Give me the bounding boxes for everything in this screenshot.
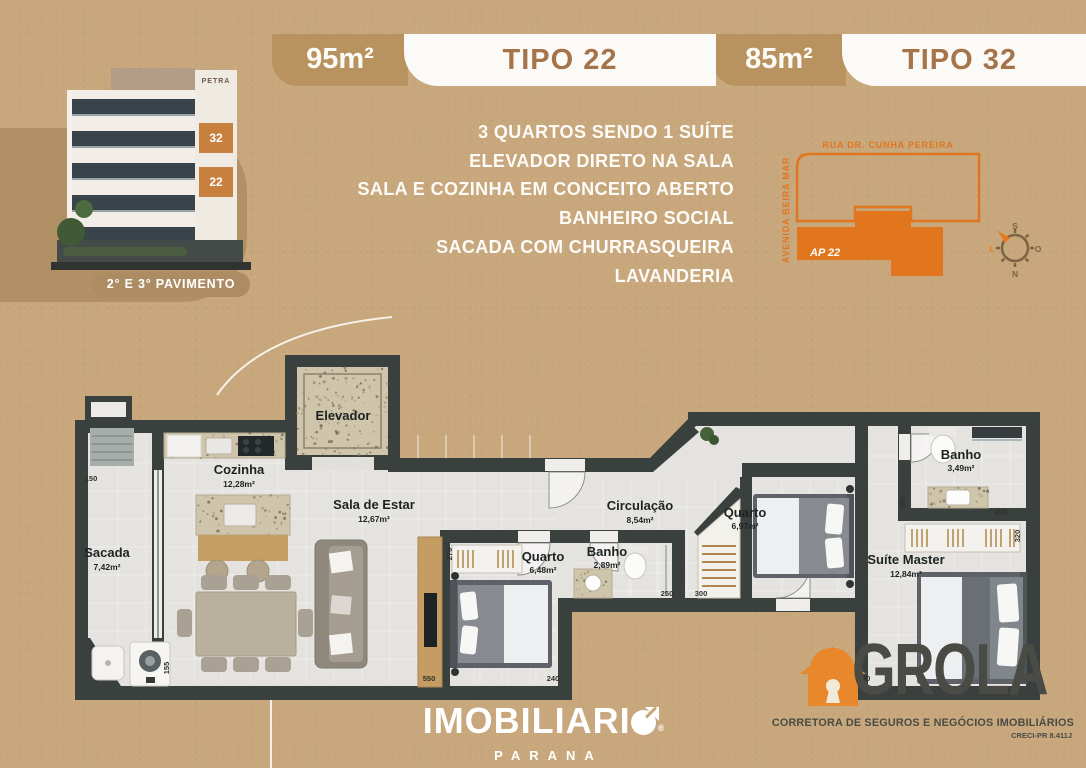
kitchen-sink	[206, 438, 232, 454]
building-hedge	[63, 247, 187, 256]
service-box-inner	[91, 402, 126, 417]
brand-region: PARANA	[383, 748, 705, 763]
compass-l: L	[989, 244, 994, 254]
cooktop	[238, 436, 274, 456]
lot-outline	[797, 154, 979, 221]
compass-s: S	[1012, 221, 1018, 231]
label-cozinha: Cozinha	[214, 462, 265, 477]
feature-list: 3 QUARTOS SENDO 1 SUÍTE ELEVADOR DIRETO …	[314, 118, 734, 290]
sink	[585, 575, 601, 591]
label-quarto2: Quarto	[724, 505, 767, 520]
dim-250: 250	[661, 589, 674, 598]
palm-tree-icon	[75, 200, 93, 218]
bedroom2-items	[753, 485, 854, 588]
compass-o: O	[1035, 244, 1042, 254]
registered-mark: ®	[658, 723, 666, 733]
dim-270: 270	[445, 548, 454, 561]
grola-subtitle: CORRETORA DE SEGUROS E NEGÓCIOS IMOBILIÁ…	[772, 717, 1074, 729]
dim-550: 550	[423, 674, 436, 683]
area-quarto1: 6,48m²	[530, 565, 557, 575]
fridge	[167, 435, 201, 457]
label-banho1: Banho	[587, 544, 628, 559]
label-elevador: Elevador	[316, 408, 371, 423]
flyer-page: 95m² TIPO 22 85m² TIPO 32 PETRA 32 22 2°…	[0, 0, 1086, 768]
area-banho2: 3,49m²	[948, 463, 975, 473]
dining-table	[196, 592, 296, 656]
feature-line: LAVANDERIA	[314, 262, 734, 291]
label-sala: Sala de Estar	[333, 497, 415, 512]
feature-line: SACADA COM CHURRASQUEIRA	[314, 233, 734, 262]
label-suite: Suíte Master	[867, 552, 944, 567]
area-badge-95: 95m²	[272, 34, 408, 86]
dim-150: 150	[85, 474, 98, 483]
unit-footprint-label: AP 22	[809, 247, 840, 259]
feature-line: ELEVADOR DIRETO NA SALA	[314, 147, 734, 176]
label-quarto1: Quarto	[522, 549, 565, 564]
imobiliario-logo: IMOBILIARI® PARANA	[383, 702, 705, 763]
street-name-left: AVENIDA BEIRA MAR	[781, 157, 791, 263]
dim-205: 205	[995, 507, 1008, 516]
dim-240: 240	[547, 674, 560, 683]
building-tower: PETRA 32 22	[195, 70, 237, 252]
label-circulacao: Circulação	[607, 498, 674, 513]
label-banho2: Banho	[941, 447, 982, 462]
sink	[946, 490, 970, 505]
shower	[972, 427, 1022, 438]
dim-300: 300	[695, 589, 708, 598]
area-banho1: 2,89m²	[594, 560, 621, 570]
tv	[424, 593, 437, 647]
area-cozinha: 12,28m²	[223, 479, 255, 489]
grola-wordmark: GROLA	[852, 632, 1039, 710]
building-render: PETRA 32 22	[55, 66, 251, 280]
brand-o-icon	[631, 708, 658, 735]
area-badge-85: 85m²	[712, 34, 846, 86]
island-sink	[224, 504, 256, 526]
tipo-32-label: TIPO 32	[842, 34, 1086, 86]
palm-tree-icon	[57, 218, 85, 246]
site-map: RUA DR. CUNHA PEREIRA AVENIDA BEIRA MAR …	[781, 140, 979, 276]
feature-line: BANHEIRO SOCIAL	[314, 204, 734, 233]
floor-label-22: 22	[199, 167, 233, 197]
pavement-badge: 2° E 3° PAVIMENTO	[92, 272, 250, 297]
feature-line: 3 QUARTOS SENDO 1 SUÍTE	[314, 118, 734, 147]
dim-190: 190	[898, 497, 907, 510]
building-sign: PETRA	[195, 70, 237, 85]
grola-creci: CRECI-PR 8.411J	[1011, 731, 1072, 740]
street-name-top: RUA DR. CUNHA PEREIRA	[822, 140, 953, 150]
compass-n: N	[1012, 269, 1018, 279]
island-wood-base	[198, 535, 288, 561]
area-quarto2: 6,97m²	[732, 521, 759, 531]
floor-label-32: 32	[199, 123, 233, 153]
area-sala: 12,67m²	[358, 514, 390, 524]
brand-wordmark: IMOBILIARI®	[383, 702, 705, 747]
compass-arrow	[998, 231, 1010, 243]
building-facade	[67, 90, 199, 252]
label-sacada: Sacada	[84, 545, 130, 560]
building-sidewalk	[51, 262, 251, 270]
feature-line: SALA E COZINHA EM CONCEITO ABERTO	[314, 175, 734, 204]
dim-155: 155	[162, 662, 171, 675]
area-sacada: 7,42m²	[94, 562, 121, 572]
brand-text: IMOBILIARI	[423, 700, 631, 741]
compass-rose-icon: S L O N	[989, 221, 1041, 279]
plant-icon	[709, 435, 719, 445]
tipo-22-label: TIPO 22	[404, 34, 716, 86]
toilet	[624, 553, 646, 579]
area-suite: 12,84m²	[890, 569, 922, 579]
elevator-door	[312, 457, 374, 470]
area-circulacao: 8,54m²	[627, 515, 654, 525]
dim-320: 320	[1013, 530, 1022, 543]
